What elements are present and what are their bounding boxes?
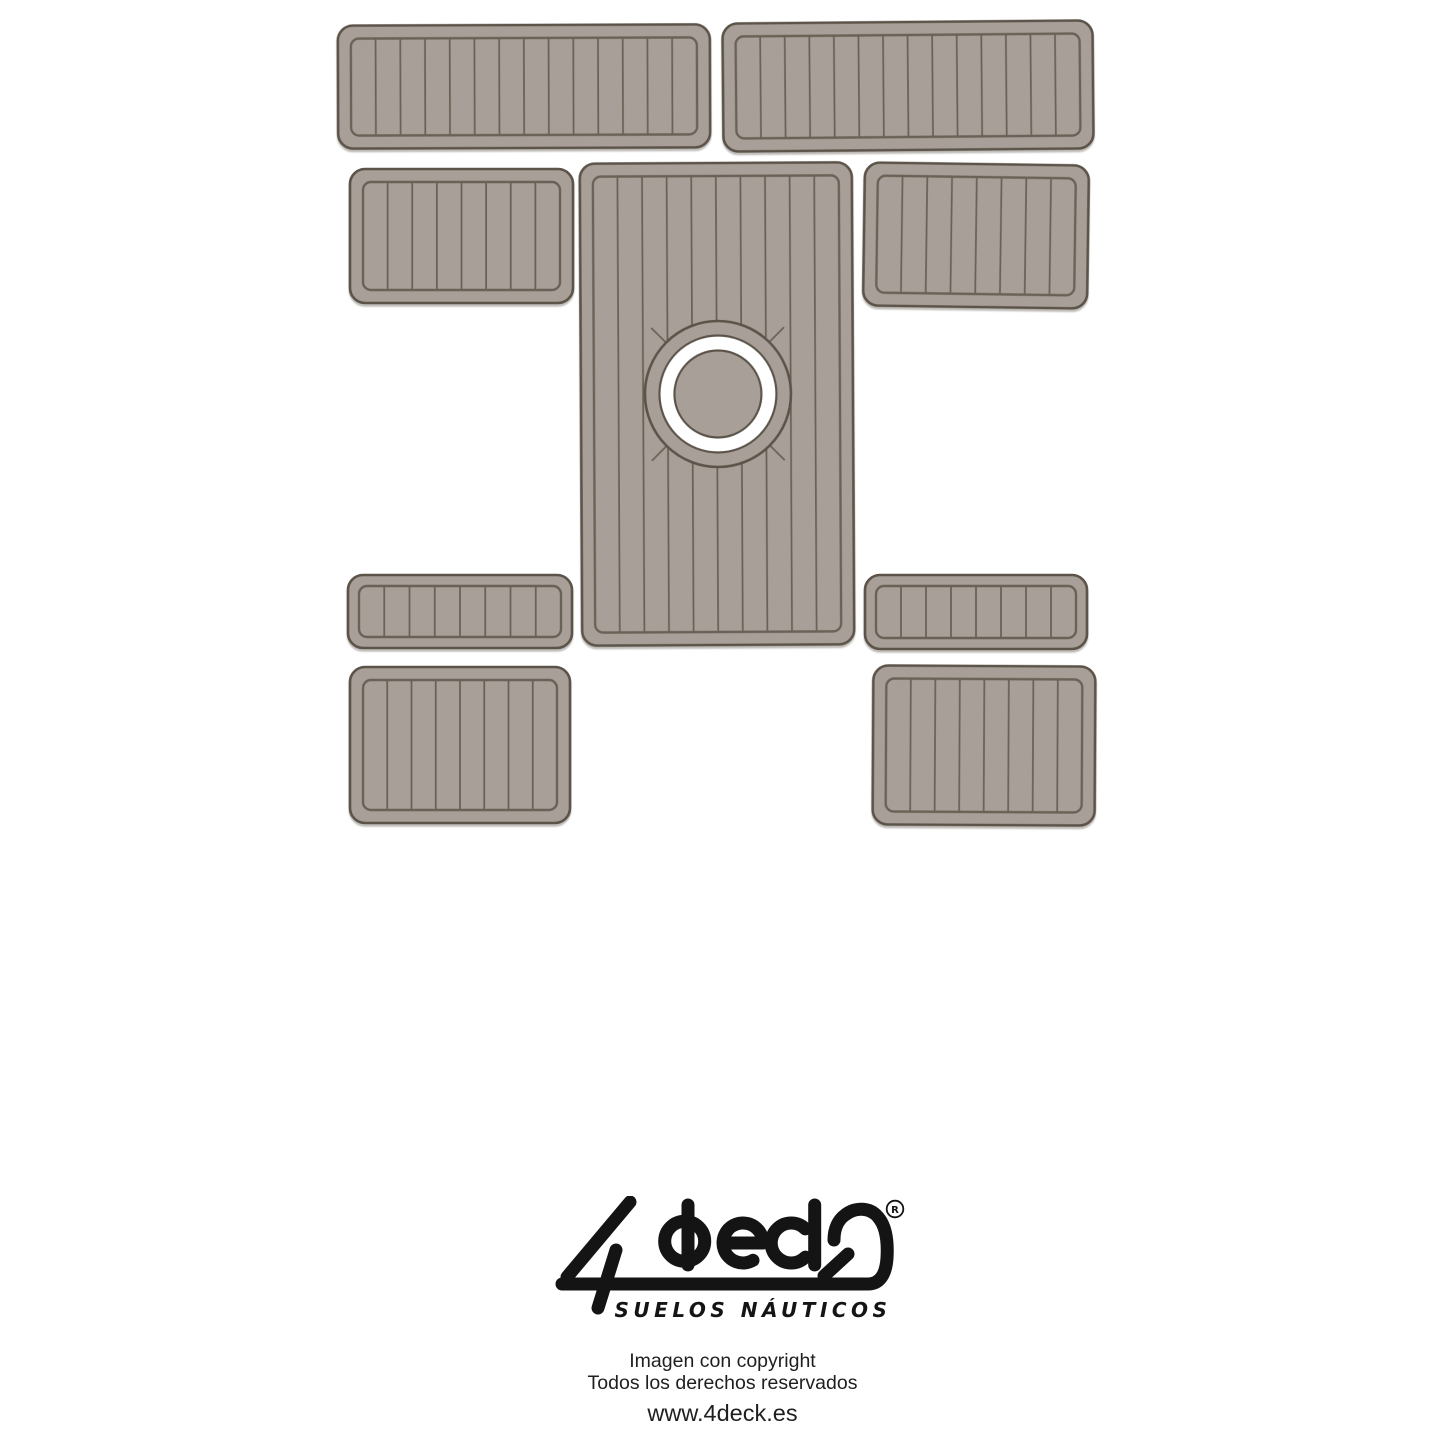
deck-pad-top-right <box>722 20 1093 151</box>
deck-pad-center-console <box>580 162 855 645</box>
logo-c-ring <box>771 1223 805 1263</box>
plank-groove <box>1057 680 1058 811</box>
website-url: www.4deck.es <box>0 1400 1445 1427</box>
logo-k-arm <box>824 1254 848 1276</box>
plank-groove <box>957 36 958 136</box>
deck-pad-small-left <box>348 575 572 648</box>
plank-groove <box>760 37 761 137</box>
logo-4-diagonal <box>567 1202 630 1277</box>
plank-groove <box>1008 680 1009 811</box>
deck-pad-small-right <box>865 575 1087 649</box>
plank-groove <box>858 36 859 136</box>
deck-pad-top-left <box>338 24 710 148</box>
brand-logo-art: R SUELOS NÁUTICOS <box>550 1196 915 1336</box>
deck-pad-mid-left <box>350 169 573 303</box>
brand-logo: R SUELOS NÁUTICOS <box>550 1196 915 1336</box>
plank-groove <box>785 37 786 137</box>
copyright-line-1: Imagen con copyright <box>0 1350 1445 1372</box>
plank-groove <box>908 36 909 136</box>
registered-mark-letter: R <box>891 1205 899 1216</box>
plank-groove <box>935 680 936 811</box>
plank-groove <box>1055 35 1056 135</box>
logo-tagline: SUELOS NÁUTICOS <box>615 1298 892 1322</box>
plank-groove <box>1006 35 1007 135</box>
deck-pad-bottom-left <box>350 667 570 823</box>
plank-groove <box>959 680 960 811</box>
copyright-product-image: R SUELOS NÁUTICOS Imagen con copyright T… <box>0 0 1445 1445</box>
hatch-inner-circle <box>674 350 761 437</box>
plank-groove <box>1033 680 1034 811</box>
plank-groove <box>910 680 911 811</box>
plank-groove <box>834 37 835 137</box>
deck-pad-mid-right <box>863 162 1089 308</box>
copyright-line-2: Todos los derechos reservados <box>0 1372 1445 1394</box>
plank-groove <box>981 35 982 135</box>
plank-groove <box>932 36 933 136</box>
deck-pad-bottom-right <box>873 665 1096 825</box>
plank-groove <box>1030 35 1031 135</box>
plank-groove <box>984 680 985 811</box>
plank-groove <box>883 36 884 136</box>
plank-groove <box>809 37 810 137</box>
